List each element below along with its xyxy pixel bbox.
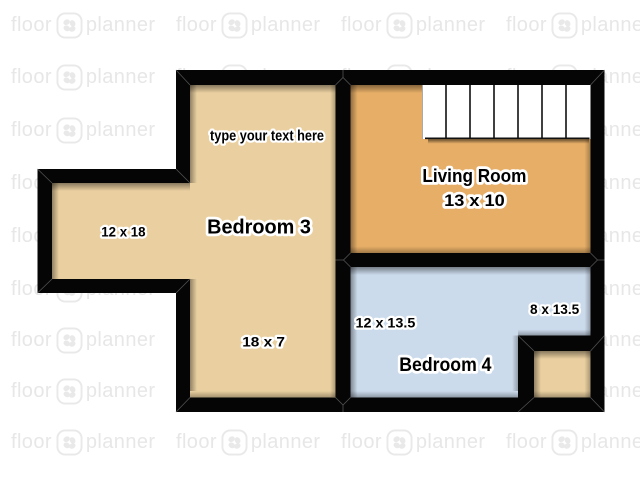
svg-text:Living Room: Living Room bbox=[422, 165, 526, 186]
svg-text:type your text here: type your text here bbox=[210, 128, 324, 144]
svg-text:8 x 13.5: 8 x 13.5 bbox=[530, 301, 580, 317]
svg-text:Bedroom 3: Bedroom 3 bbox=[207, 216, 311, 238]
svg-text:18 x 7: 18 x 7 bbox=[242, 335, 285, 350]
svg-text:Bedroom 4: Bedroom 4 bbox=[399, 353, 492, 375]
svg-text:12 x 13.5: 12 x 13.5 bbox=[356, 316, 416, 332]
svg-text:13 x 10: 13 x 10 bbox=[444, 191, 505, 210]
svg-text:12 x 18: 12 x 18 bbox=[101, 224, 146, 239]
